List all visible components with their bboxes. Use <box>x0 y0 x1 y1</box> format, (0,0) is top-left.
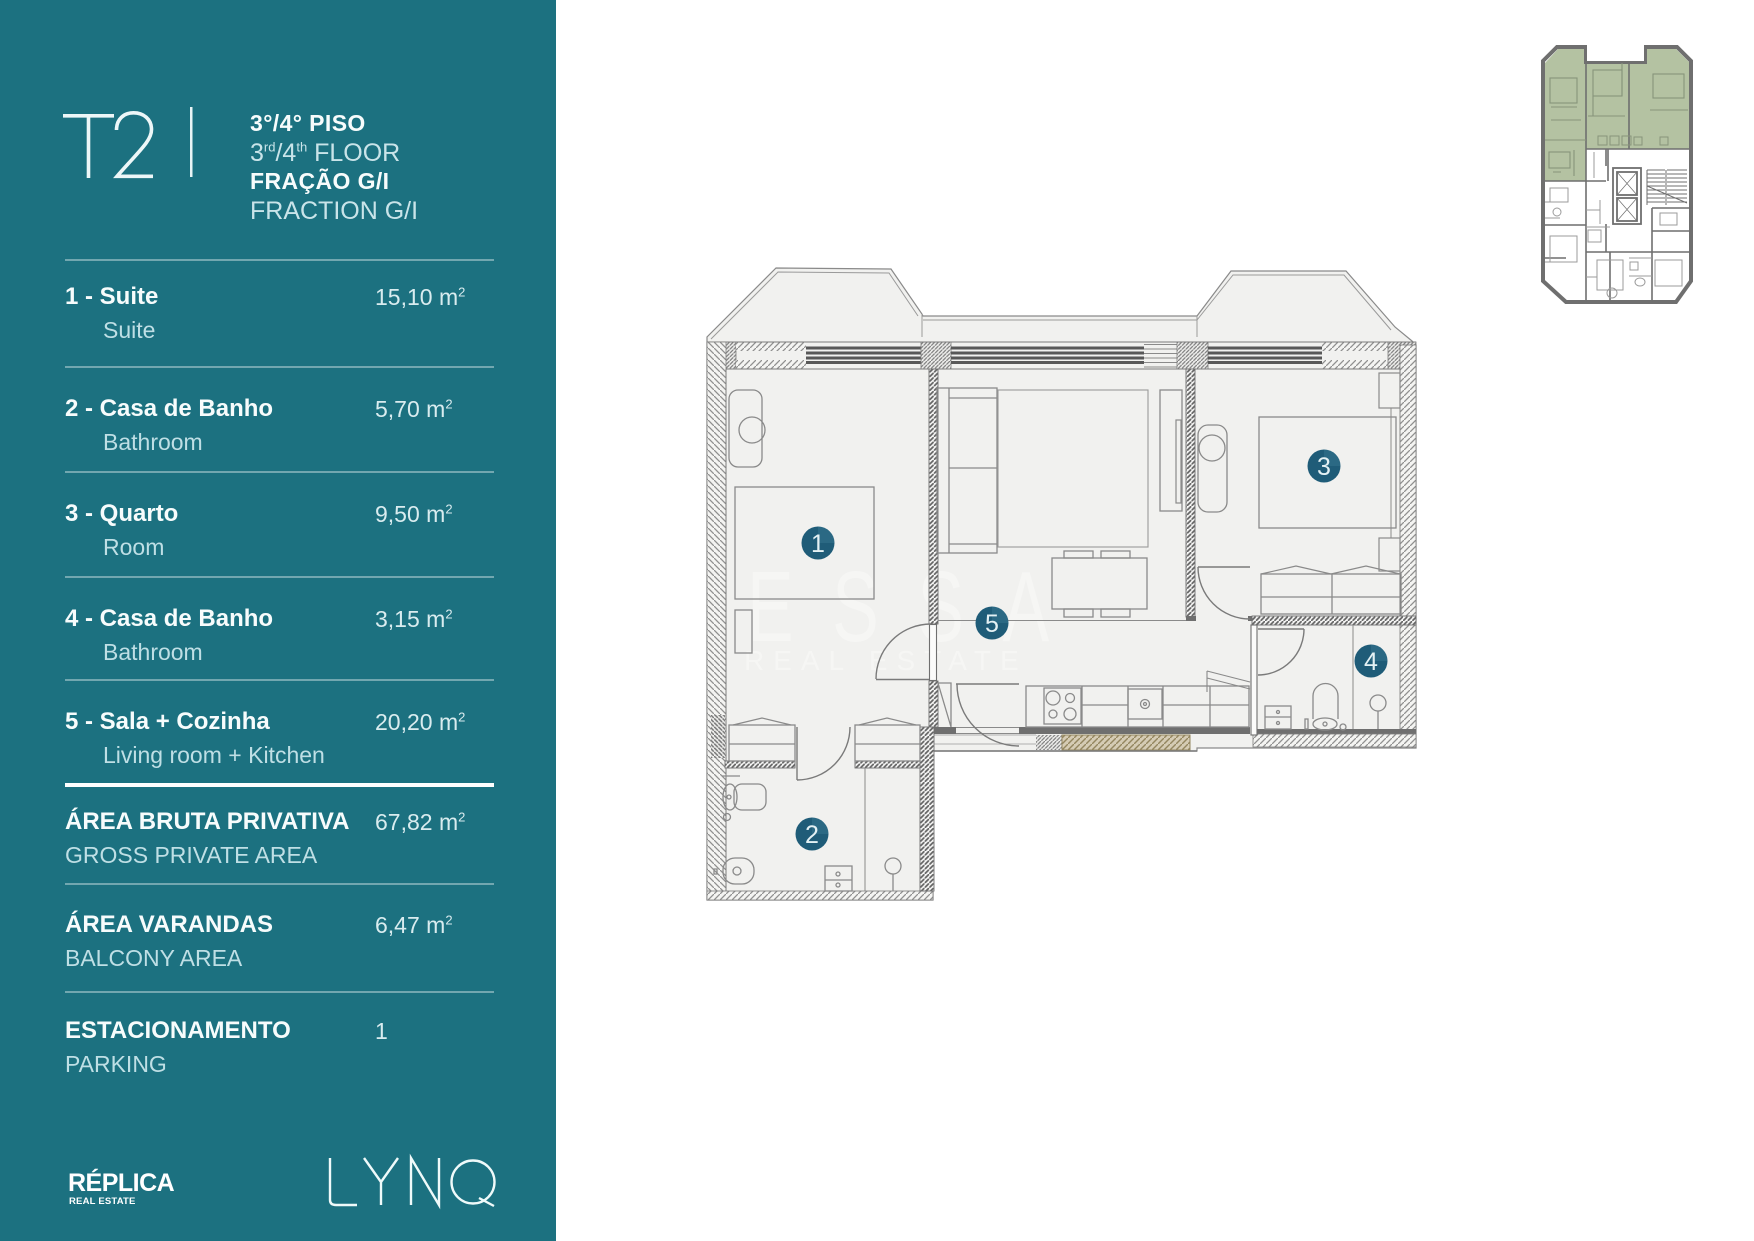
svg-text:5: 5 <box>985 610 999 638</box>
svg-text:3: 3 <box>1317 453 1331 481</box>
svg-text:4: 4 <box>1364 648 1378 676</box>
svg-text:REAL ESTATE: REAL ESTATE <box>744 645 1028 676</box>
svg-text:2: 2 <box>805 821 819 849</box>
svg-text:1: 1 <box>811 530 825 558</box>
